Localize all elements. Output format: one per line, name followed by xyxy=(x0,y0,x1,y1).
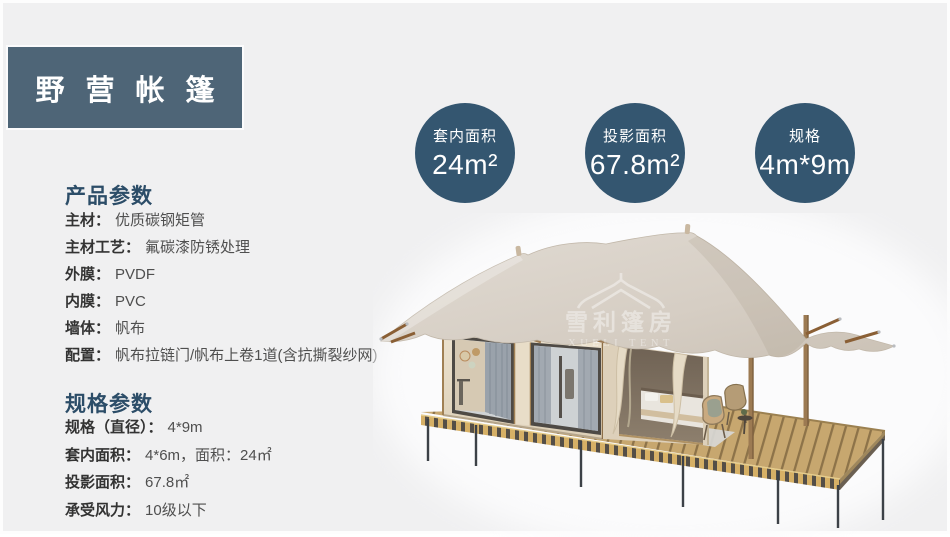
stat-value: 24m² xyxy=(432,149,498,181)
param-row-material-process: 主材工艺：氟碳漆防锈处理 xyxy=(65,238,378,265)
stat-circle-size: 规格 4m*9m xyxy=(755,103,855,203)
stat-label: 规格 xyxy=(789,125,821,146)
param-row-projection-area: 投影面积：67.8㎡ xyxy=(65,473,272,501)
slide-background: 野营帐篷 套内面积 24m² 投影面积 67.8m² 规格 4m*9m 产品参数… xyxy=(0,0,950,534)
spec-params-list: 规格（直径）：4*9m 套内面积：4*6m，面积：24㎡ 投影面积：67.8㎡ … xyxy=(65,418,272,528)
page-title-box: 野营帐篷 xyxy=(8,47,242,128)
stat-label: 套内面积 xyxy=(433,125,497,146)
param-row-material: 主材：优质碳钢矩管 xyxy=(65,211,378,238)
product-params-list: 主材：优质碳钢矩管 主材工艺：氟碳漆防锈处理 外膜：PVDF 内膜：PVC 墙体… xyxy=(65,211,378,373)
param-row-wind-resistance: 承受风力：10级以下 xyxy=(65,501,272,529)
param-row-wall: 墙体：帆布 xyxy=(65,319,378,346)
param-row-outer-membrane: 外膜：PVDF xyxy=(65,265,378,292)
stat-value: 67.8m² xyxy=(590,149,680,181)
stat-circle-projection-area: 投影面积 67.8m² xyxy=(585,103,685,203)
tent-product-image: 雪利篷房 XUELI TENT xyxy=(373,213,950,537)
page-title: 野营帐篷 xyxy=(14,67,235,109)
stat-circle-inner-area: 套内面积 24m² xyxy=(415,103,515,203)
param-row-size: 规格（直径）：4*9m xyxy=(65,418,272,446)
tent-open-section xyxy=(603,343,708,445)
param-row-inner-area: 套内面积：4*6m，面积：24㎡ xyxy=(65,446,272,474)
watermark-cn-text: 雪利篷房 xyxy=(565,309,677,335)
spec-params-heading: 规格参数 xyxy=(65,388,153,418)
stat-label: 投影面积 xyxy=(603,125,667,146)
stat-value: 4m*9m xyxy=(759,149,850,181)
watermark-en-text: XUELI TENT xyxy=(568,338,674,349)
param-row-inner-membrane: 内膜：PVC xyxy=(65,292,378,319)
product-params-heading: 产品参数 xyxy=(65,180,153,210)
param-row-configuration: 配置：帆布拉链门/帆布上卷1道(含抗撕裂纱网) xyxy=(65,346,378,373)
